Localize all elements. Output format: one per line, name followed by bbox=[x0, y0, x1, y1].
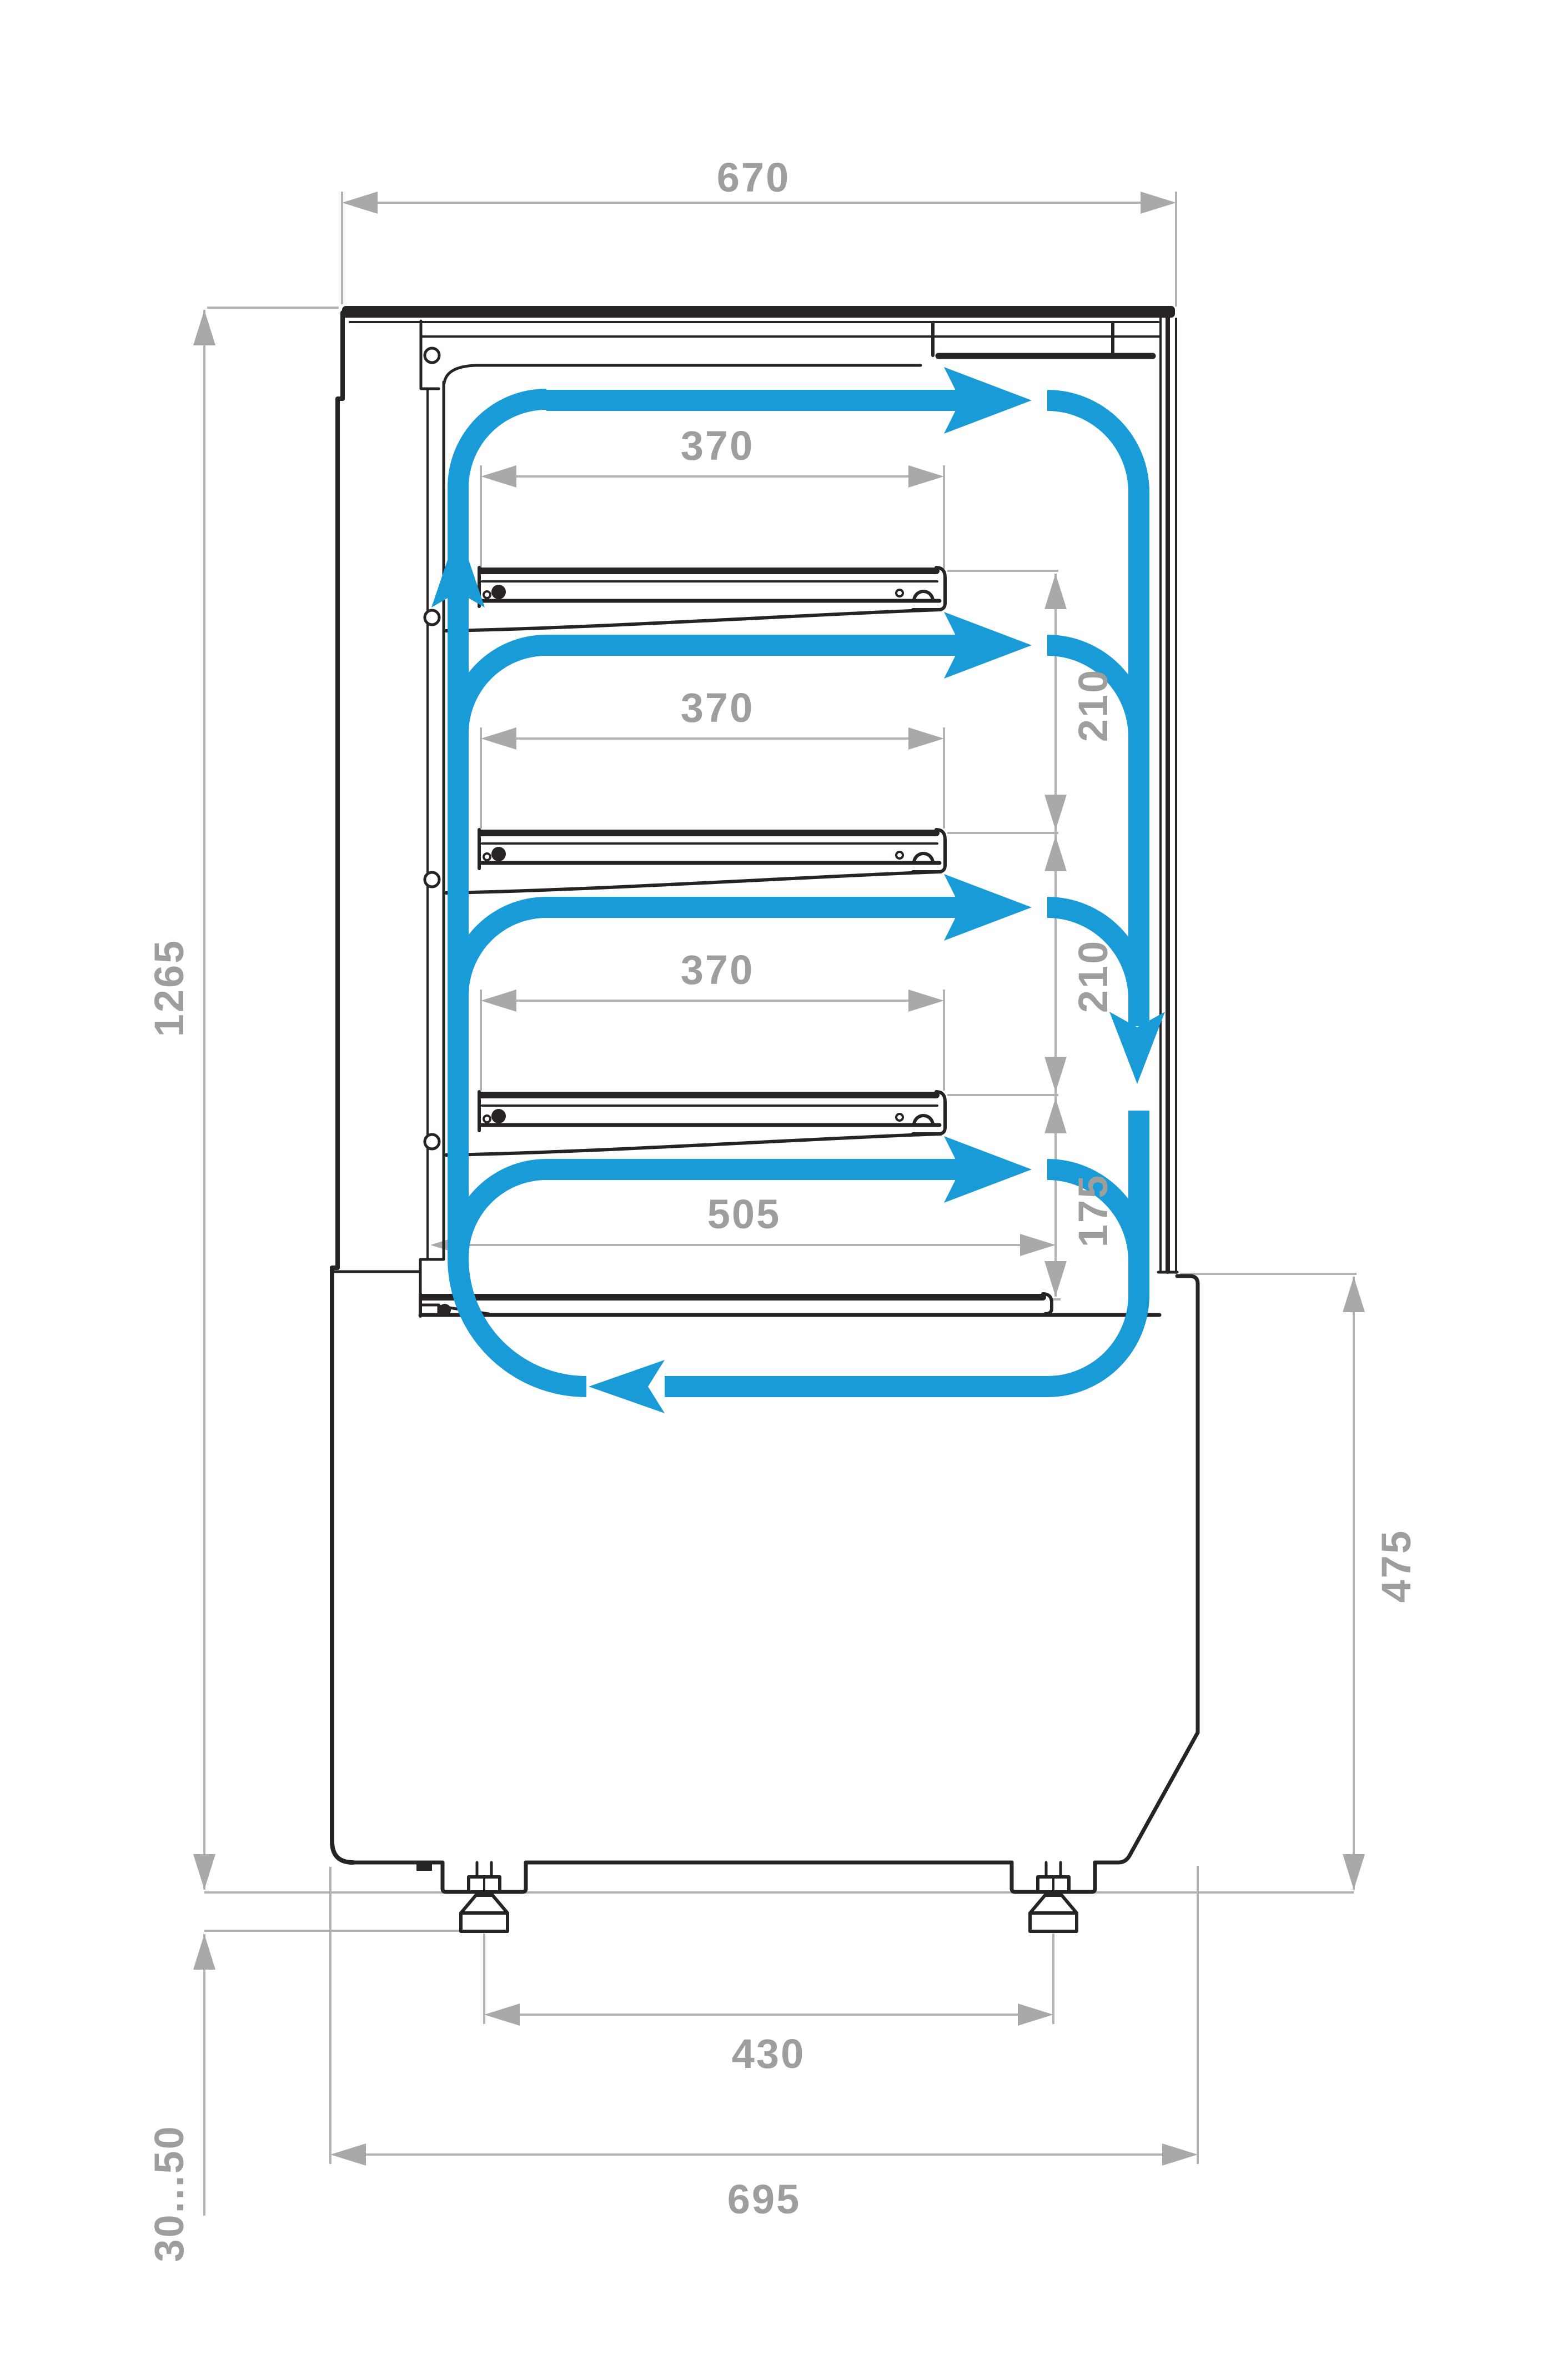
dim-370-1-label: 370 bbox=[681, 423, 754, 469]
dim-210-2-label: 210 bbox=[1070, 940, 1116, 1013]
dim-695-label: 695 bbox=[727, 2176, 801, 2222]
duct-vent-hole-icon bbox=[425, 872, 439, 887]
dim-370-2-label: 370 bbox=[681, 685, 754, 731]
dim-430-lines bbox=[484, 1934, 1053, 2024]
duct-vent-hole-icon bbox=[425, 610, 439, 625]
dim-370-3-lines bbox=[481, 990, 944, 1091]
dim-370-3-label: 370 bbox=[681, 947, 754, 993]
base-deck bbox=[420, 1294, 1159, 1316]
front-glass bbox=[1158, 318, 1177, 1273]
shelf-3 bbox=[446, 1092, 945, 1155]
airflow-front-downdraft bbox=[1128, 492, 1149, 1026]
shelf-1 bbox=[446, 568, 945, 631]
dim-210-1-label: 210 bbox=[1070, 669, 1116, 742]
top-canopy bbox=[342, 306, 1175, 383]
dim-475-lines bbox=[1180, 1274, 1357, 1890]
airflow-left-arrow-icon bbox=[589, 1360, 665, 1413]
dim-1265-label: 1265 bbox=[146, 939, 192, 1037]
duct-vent-hole-icon bbox=[425, 1134, 439, 1149]
cabinet-chamfer bbox=[1095, 1733, 1198, 1862]
rear-wall-duct bbox=[332, 313, 444, 1862]
display-case-section-drawing: 670 370 370 370 210 210 175 505 1265 475… bbox=[0, 0, 1542, 2380]
dim-475-label: 475 bbox=[1373, 1529, 1419, 1603]
dim-3050-label: 30...50 bbox=[146, 2125, 192, 2262]
right-leg bbox=[1012, 1862, 1095, 1931]
airflow-rear-riser bbox=[448, 488, 469, 1258]
left-leg bbox=[443, 1862, 526, 1931]
technical-drawing-page: 670 370 370 370 210 210 175 505 1265 475… bbox=[0, 0, 1542, 2380]
dim-1265-lines bbox=[204, 308, 339, 1890]
airflow-bottom-return bbox=[665, 1376, 1047, 1397]
shelf-2 bbox=[446, 830, 945, 893]
dim-670-label: 670 bbox=[717, 154, 790, 200]
duct-vent-hole-icon bbox=[425, 348, 439, 363]
dim-370-2-lines bbox=[481, 727, 944, 829]
dim-670-lines bbox=[342, 192, 1176, 307]
dim-430-label: 430 bbox=[732, 2031, 805, 2077]
lower-cabinet bbox=[353, 1276, 1198, 1871]
dim-175-label: 175 bbox=[1070, 1174, 1116, 1247]
dim-505-label: 505 bbox=[707, 1191, 781, 1237]
dim-370-1-lines bbox=[481, 465, 944, 569]
